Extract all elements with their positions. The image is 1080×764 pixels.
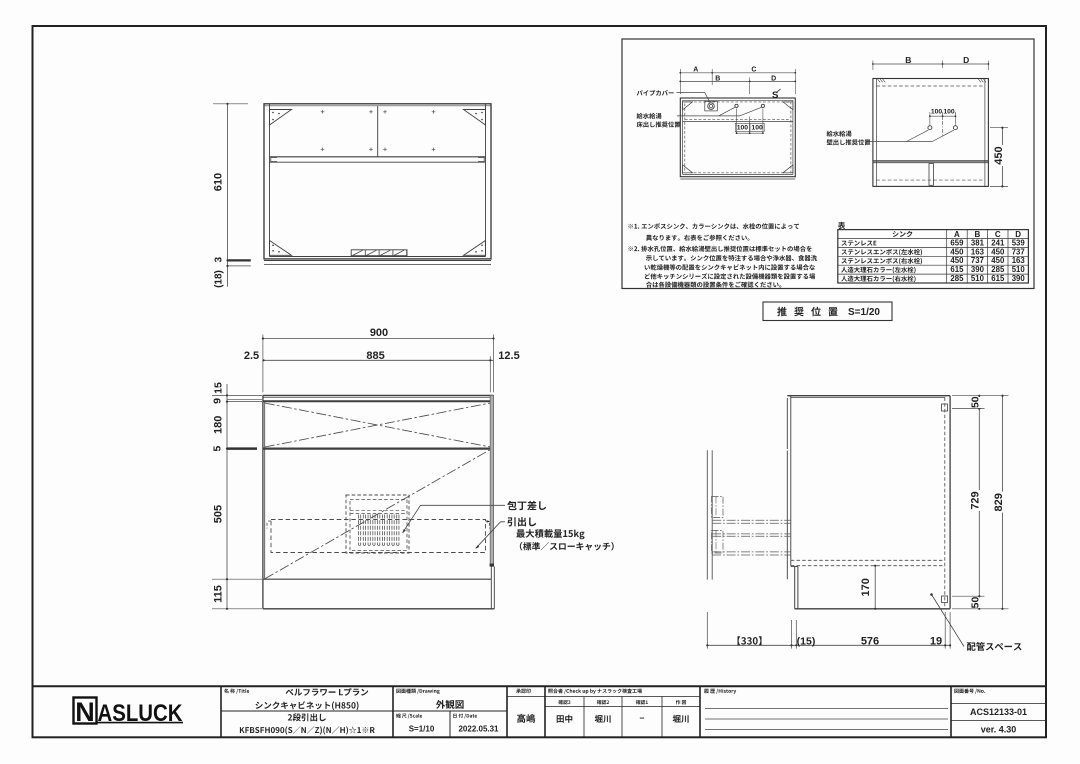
svg-text:390: 390 (1012, 274, 1026, 283)
svg-text:50: 50 (970, 396, 982, 408)
svg-text:615: 615 (950, 265, 964, 274)
svg-text:15: 15 (213, 382, 225, 394)
svg-text:A: A (693, 67, 698, 74)
svg-text:S=1/10: S=1/10 (409, 725, 435, 734)
svg-text:C: C (751, 67, 756, 74)
svg-text:9: 9 (212, 398, 224, 404)
svg-text:885: 885 (366, 350, 384, 362)
svg-text:2.5: 2.5 (244, 350, 259, 362)
svg-text:100: 100 (931, 109, 943, 116)
svg-text:539: 539 (1012, 238, 1026, 247)
svg-text:659: 659 (950, 238, 964, 247)
svg-text:D: D (771, 75, 776, 82)
svg-text:B: B (905, 55, 911, 65)
svg-text:829: 829 (993, 493, 1005, 511)
svg-text:ver. 4.30: ver. 4.30 (981, 725, 1017, 735)
svg-text:19: 19 (930, 636, 942, 648)
svg-text:100: 100 (751, 125, 763, 132)
svg-text:381: 381 (971, 238, 985, 247)
svg-text:729: 729 (970, 491, 982, 509)
svg-text:S=1/20: S=1/20 (848, 307, 880, 318)
svg-text:900: 900 (370, 327, 388, 339)
svg-text:163: 163 (1012, 256, 1026, 265)
svg-text:D: D (963, 55, 969, 65)
svg-text:505: 505 (213, 505, 225, 523)
svg-text:737: 737 (971, 256, 984, 265)
svg-text:180: 180 (213, 416, 225, 434)
svg-text:−: − (640, 713, 645, 723)
svg-text:B: B (715, 75, 720, 82)
svg-text:615: 615 (991, 274, 1005, 283)
svg-text:576: 576 (861, 636, 879, 648)
svg-text:510: 510 (1012, 265, 1026, 274)
svg-text:163: 163 (971, 247, 985, 256)
svg-text:450: 450 (991, 256, 1005, 265)
svg-text:115: 115 (213, 585, 225, 603)
svg-text:170: 170 (860, 578, 872, 596)
svg-text:390: 390 (971, 265, 985, 274)
svg-text:100: 100 (737, 125, 749, 132)
svg-text:5: 5 (212, 446, 224, 452)
svg-text:N: N (75, 697, 95, 727)
svg-text:737: 737 (1012, 247, 1025, 256)
svg-text:450: 450 (950, 256, 964, 265)
svg-text:285: 285 (991, 265, 1005, 274)
svg-text:12.5: 12.5 (498, 350, 519, 362)
svg-text:241: 241 (991, 238, 1005, 247)
svg-text:610: 610 (213, 173, 225, 191)
svg-text:50: 50 (970, 597, 982, 609)
svg-text:450: 450 (950, 247, 964, 256)
svg-text:3: 3 (213, 256, 224, 262)
svg-text:100: 100 (943, 109, 955, 116)
svg-text:450: 450 (991, 247, 1005, 256)
svg-text:(15): (15) (797, 636, 816, 648)
svg-text:285: 285 (950, 274, 964, 283)
svg-text:450: 450 (993, 146, 1005, 164)
svg-text:(18): (18) (213, 270, 224, 288)
svg-text:510: 510 (971, 274, 985, 283)
svg-text:2022.05.31: 2022.05.31 (458, 725, 499, 734)
svg-text:ACS12133-01: ACS12133-01 (970, 707, 1027, 717)
